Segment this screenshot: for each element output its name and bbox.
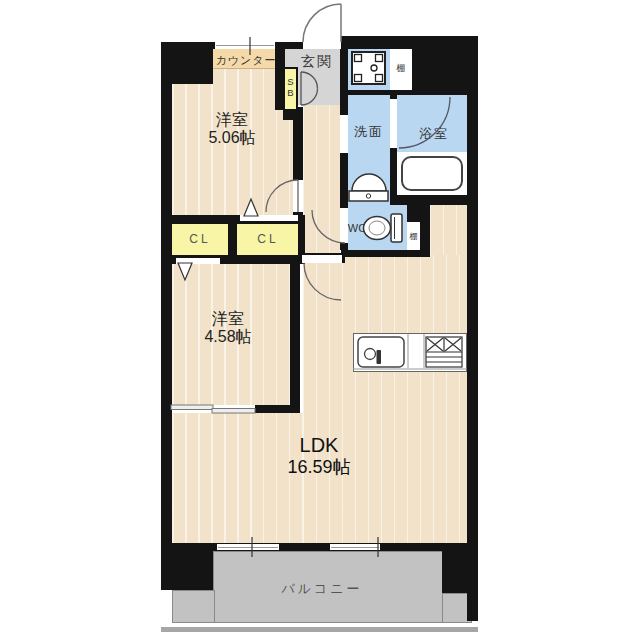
shelf-upper-label: 棚 <box>397 63 406 73</box>
bedroom1-size: 5.06帖 <box>208 129 255 147</box>
wall-wc-right <box>420 202 430 255</box>
balcony-wing-left <box>172 590 215 623</box>
shoe-box-label: S B <box>287 77 293 99</box>
wall-top-1 <box>161 42 215 49</box>
closet-left-label: CL <box>189 233 210 247</box>
bathtub-area <box>397 152 467 195</box>
bathroom-door-gap <box>390 99 397 148</box>
kitchen-counter <box>353 333 467 372</box>
wall-above-wc-shelf <box>407 202 420 222</box>
wall-right <box>467 36 478 621</box>
window-ldk-1-midline <box>218 547 278 548</box>
bedroom2-size: 4.58帖 <box>204 328 251 346</box>
bathroom-floor <box>397 95 467 152</box>
ldk-name: LDK <box>287 434 350 457</box>
wc-label: WC <box>348 222 366 235</box>
hallway-floor <box>303 105 340 263</box>
bathroom-label: 浴室 <box>419 127 449 142</box>
hall-ldk-door-gap <box>302 255 342 263</box>
closet-left-door-gap <box>176 257 220 264</box>
balcony-label: バルコニー <box>281 582 362 597</box>
bedroom1-name: 洋室 <box>208 111 255 129</box>
ldk-label: LDK 16.59帖 <box>287 434 350 478</box>
ldk-floor-west <box>172 413 303 543</box>
ldk-floor-east <box>303 255 467 543</box>
counter-label: カウンター <box>215 54 276 67</box>
entrance-label: 玄関 <box>301 53 333 69</box>
window-ldk-2-midline <box>331 547 379 548</box>
wc-door-gap <box>340 208 348 243</box>
wall-left <box>161 42 172 590</box>
wall-block-bottomright <box>442 548 470 593</box>
wall-bedroom2-right <box>290 264 300 413</box>
wall-above-shelf <box>390 42 412 49</box>
bedroom1-door-gap <box>293 180 303 212</box>
shelf-wc-label: 棚 <box>410 232 418 241</box>
closet-right-label: CL <box>257 233 278 247</box>
wall-topright-block <box>412 42 467 95</box>
washroom-label: 洗面 <box>354 125 384 140</box>
ldk-size: 16.59帖 <box>287 457 350 478</box>
wall-bedroom2-bottom <box>255 405 300 413</box>
window-top-midline <box>216 45 274 46</box>
entrance-door <box>303 4 341 42</box>
bedroom2-label: 洋室 4.58帖 <box>204 310 251 347</box>
bedroom2-name: 洋室 <box>204 310 251 328</box>
sliding-door-gap <box>172 405 255 413</box>
wall-above-bath <box>345 90 467 95</box>
balcony-rail <box>161 627 478 632</box>
washroom-door-gap <box>340 115 348 153</box>
bedroom1-label: 洋室 5.06帖 <box>208 111 255 148</box>
floor-plan: カウンター 玄関 洋室 5.06帖 洗面 浴室 棚 S B CL CL WC 棚… <box>0 0 640 640</box>
wall-below-wc <box>341 250 430 257</box>
wall-block-bottomleft <box>161 543 213 590</box>
